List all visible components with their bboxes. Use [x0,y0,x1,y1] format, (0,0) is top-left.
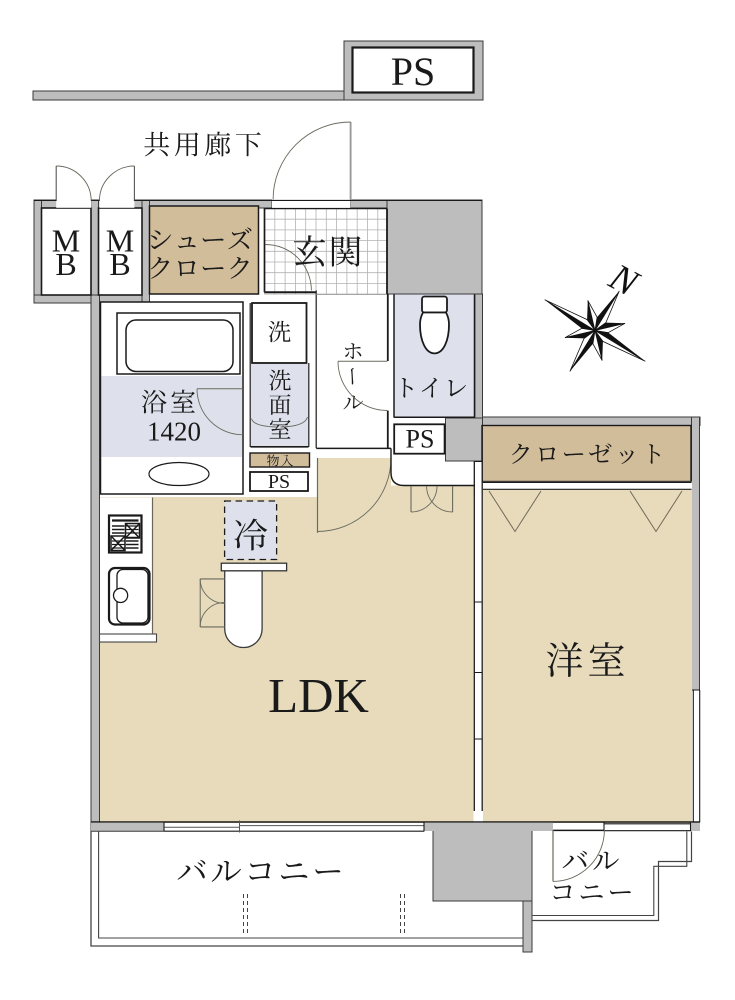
svg-text:B: B [55,246,76,282]
svg-text:PS: PS [391,49,436,94]
svg-text:LDK: LDK [268,668,369,723]
svg-text:PS: PS [268,471,290,493]
svg-text:1420: 1420 [147,417,201,447]
svg-text:PS: PS [406,425,435,454]
svg-text:N: N [602,255,647,306]
svg-text:B: B [109,246,130,282]
